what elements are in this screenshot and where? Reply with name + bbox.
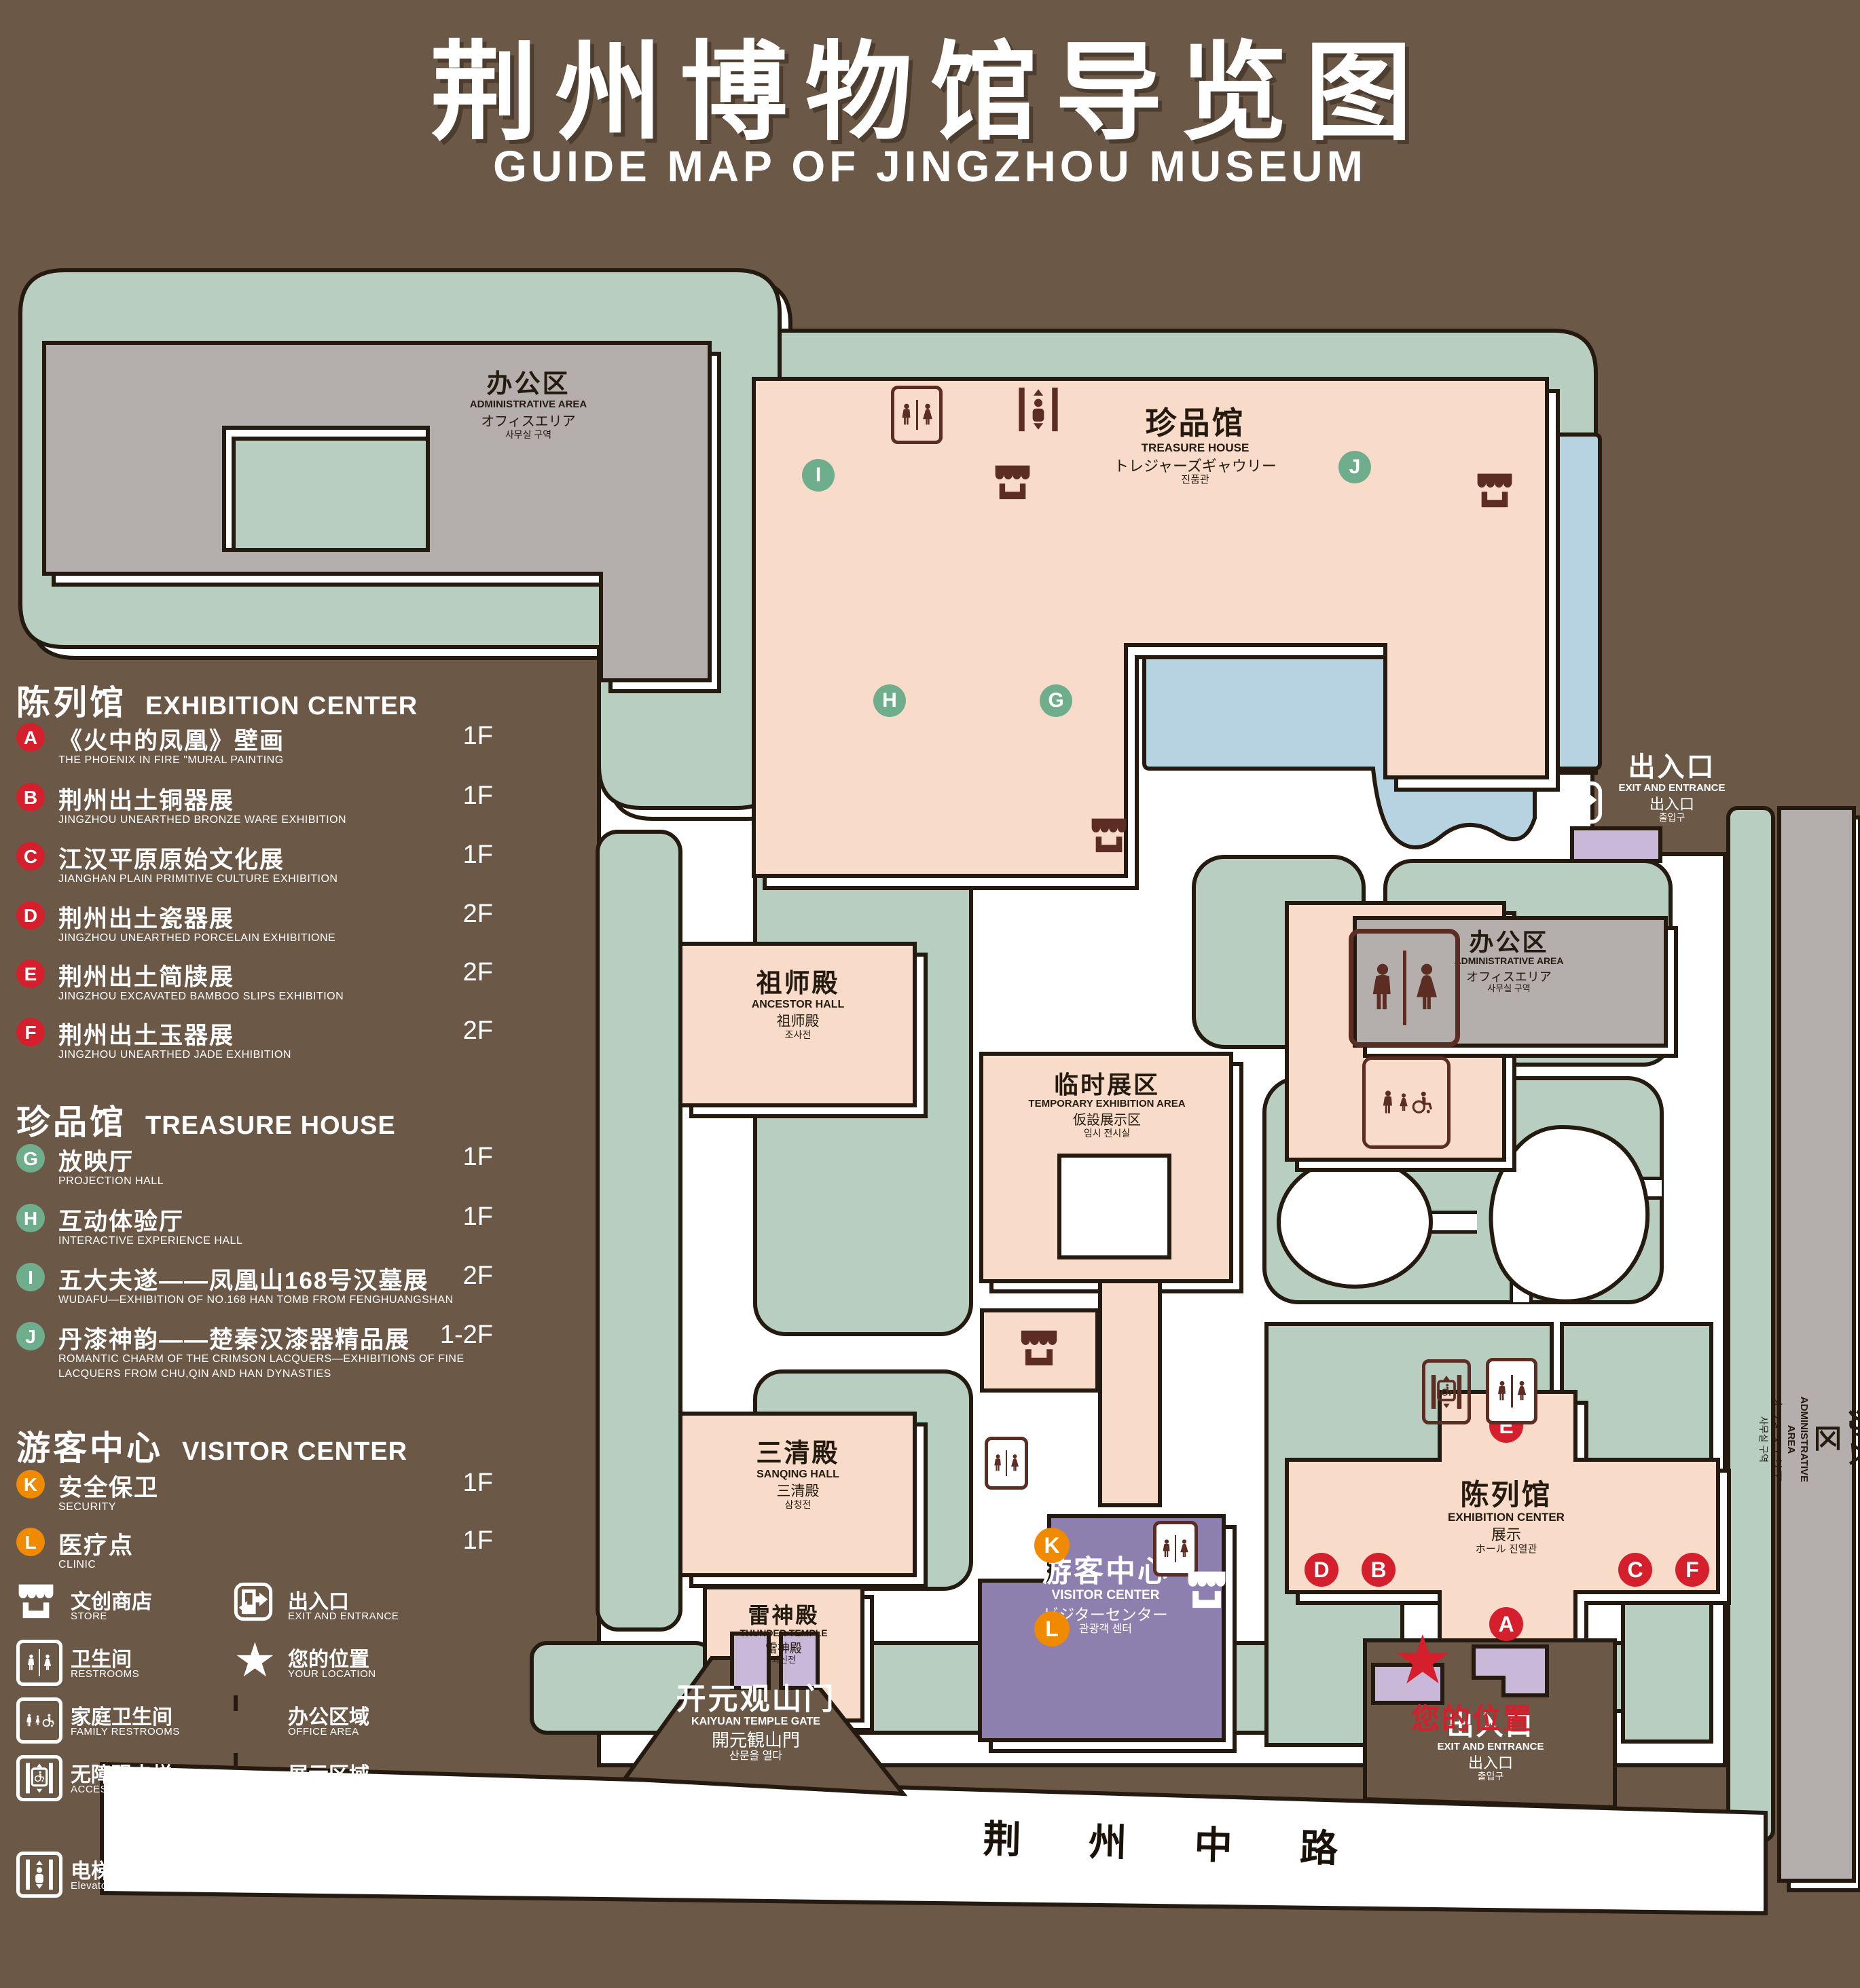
restroom-icon [1349,929,1460,1047]
your-location-star: ★ [1392,1630,1453,1691]
exit-entrance-icon [1559,781,1603,828]
office-area-swatch [234,1695,238,1711]
lawn-col-a [598,832,680,1630]
map-marker-i: I [802,459,835,492]
your-location-label: 您的位置 [1411,1696,1533,1737]
store-icon [16,1582,58,1624]
east-gate-block [1572,828,1660,861]
label-sanqing-hall: 三清殿 SANQING HALL 三清殿 삼청전 [756,1439,839,1511]
label-admin-center: 办公区 ADMINISTRATIVE AREA オフィスエリア 사무실 구역 [1455,929,1564,994]
admin-strip-east [1779,808,1854,1881]
store-icon [1184,1570,1229,1614]
elevator-icon [1017,383,1059,439]
restroom-icon [1486,1358,1537,1424]
your-location-star-icon: ★ [234,1640,276,1682]
legend-section-exhibition: 陈列馆EXHIBITION CENTER [16,676,418,724]
store-icon [1475,468,1514,517]
family-restroom-icon [16,1697,62,1744]
guide-map-poster: 荆州博物馆导览图 GUIDE MAP OF JINGZHOU MUSEUM [0,0,1860,1988]
temp-arm [1100,1281,1160,1505]
label-treasure-house: 珍品馆 TREASURE HOUSE トレジャーズギャウリー 진품관 [1114,406,1277,486]
label-kaiyuan-gate: 开元观山门 KAIYUAN TEMPLE GATE 開元観山門 산문을 열다 [676,1682,836,1763]
restroom-icon [1153,1521,1198,1577]
label-exhibition-center: 陈列馆 EXHIBITION CENTER 展示 ホール 진열관 [1448,1479,1565,1555]
map-marker-c: C [1618,1553,1652,1587]
map-marker-j: J [1338,451,1371,483]
legend-section-visitor: 游客中心VISITOR CENTER [16,1421,407,1470]
map-marker-b: B [1362,1553,1396,1587]
label-admin-east: 办公区 ADMINISTRATIVE AREA オフィスエリア 사무실 구역 [1757,1397,1860,1482]
elevator-icon [16,1852,62,1898]
map-marker-h: H [873,684,906,717]
exit-entrance-icon [234,1582,276,1624]
accessible-elevator-icon [16,1755,62,1801]
label-temp-exhibition: 临时展区 TEMPORARY EXHIBITION AREA 仮設展示区 임시 … [1028,1071,1185,1139]
label-thunder-temple: 雷神殿 THUNDER TEMPLE 雷神殿 뇌신전 [740,1604,827,1665]
restroom-icon [985,1437,1028,1490]
label-ancestor-hall: 祖师殿 ANCESTOR HALL 祖师殿 조사전 [752,970,845,1041]
accessible-elevator-icon [1422,1359,1471,1424]
map-marker-a: A [1489,1607,1523,1641]
store-icon [1019,1325,1059,1375]
family-restroom-icon [1362,1056,1451,1149]
restroom-icon [891,386,943,444]
legend-section-treasure: 珍品馆TREASURE HOUSE [16,1095,396,1144]
map-marker-k: K [1034,1528,1070,1563]
store-icon [993,460,1032,509]
map-marker-l: L [1034,1611,1070,1646]
garden-pond-small [1279,1158,1431,1287]
display-area-swatch [234,1753,238,1769]
map-marker-f: F [1675,1553,1709,1587]
label-road: 荆 州 中 路 [983,1809,1368,1875]
label-admin-northwest: 办公区 ADMINISTRATIVE AREA オフィスエリア 사무실 구역 [470,370,587,440]
store-icon [1089,813,1129,862]
map-marker-g: G [1040,684,1072,717]
restroom-icon [16,1640,62,1686]
map-marker-d: D [1305,1553,1338,1587]
label-east-exit: 出入口 EXIT AND ENTRANCE 出入口 출입구 [1619,752,1726,824]
